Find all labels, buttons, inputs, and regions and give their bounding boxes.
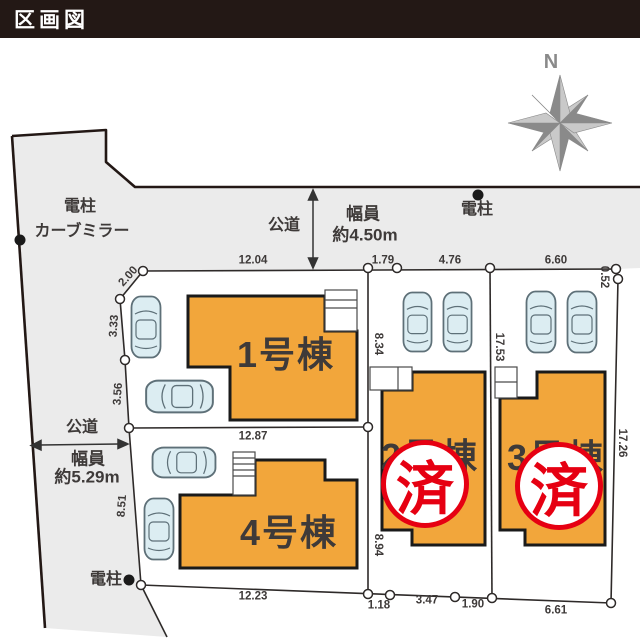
porch-building-4 xyxy=(233,452,255,495)
utility-pole-label-left: 電柱 xyxy=(64,199,96,215)
compass-rose-icon xyxy=(508,75,612,171)
dimension-bottom-4: 1.90 xyxy=(462,599,484,611)
plot-map-page: N 公道 幅員 約4.50m 電柱 電柱 カーブミラー 公道 幅員 約5.29m… xyxy=(0,0,640,639)
car-icon xyxy=(527,292,556,353)
road-width-caption-top: 幅員 xyxy=(346,206,380,223)
dimension-bottom-3: 3.47 xyxy=(416,595,438,607)
page-title: 区画図 xyxy=(0,0,640,38)
dimension-mid-split: 12.87 xyxy=(239,431,268,443)
car-icon xyxy=(443,292,471,351)
dimension-top-c: 6.60 xyxy=(545,255,567,267)
porch-building-2 xyxy=(370,367,412,390)
car-icon xyxy=(153,448,216,478)
porch-building-3 xyxy=(495,367,517,398)
utility-pole-dot xyxy=(15,235,26,246)
car-icon xyxy=(146,381,213,413)
dimension-top-a: 1.79 xyxy=(372,255,394,267)
sold-stamp-building-3: 済 xyxy=(515,442,603,530)
dimension-bottom-5: 6.61 xyxy=(545,605,567,617)
building-1-label: 1号棟 xyxy=(237,337,335,373)
utility-pole-dot xyxy=(473,190,484,201)
utility-pole-dot xyxy=(124,575,135,586)
compass-north-label: N xyxy=(544,52,558,72)
road-label-top: 公道 xyxy=(268,218,300,234)
sold-stamp-building-2: 済 xyxy=(381,440,469,528)
car-icon xyxy=(132,297,161,358)
road-width-value-top: 約4.50m xyxy=(332,227,397,244)
dimension-left-2: 3.33 xyxy=(108,314,121,337)
curve-mirror-label: カーブミラー xyxy=(34,224,129,240)
road-label-left: 公道 xyxy=(66,420,98,436)
dimension-lot1-right: 8.34 xyxy=(371,333,383,355)
utility-pole-label-top-right: 電柱 xyxy=(461,202,493,218)
dimension-top-b: 4.76 xyxy=(439,255,461,267)
dimension-top-main: 12.04 xyxy=(239,255,268,267)
road-width-value-left: 約5.29m xyxy=(54,469,119,486)
porch-building-1 xyxy=(325,290,357,331)
dimension-top-jog: 0.52 xyxy=(597,266,609,288)
dimension-right-edge: 17.26 xyxy=(615,429,627,458)
dimension-bottom-2: 1.18 xyxy=(368,600,390,612)
car-icon xyxy=(403,292,431,351)
dimension-left-3: 3.56 xyxy=(112,382,125,405)
road-width-caption-left: 幅員 xyxy=(71,451,105,468)
dimension-left-4: 8.51 xyxy=(116,494,129,517)
dimension-lot2-right: 17.53 xyxy=(492,333,504,362)
dimension-lot4-right: 8.94 xyxy=(371,534,383,556)
car-icon xyxy=(568,292,597,353)
building-4-label: 4号棟 xyxy=(240,515,338,551)
car-icon xyxy=(145,499,174,560)
utility-pole-label-bottom: 電柱 xyxy=(90,572,122,588)
dimension-bottom-1: 12.23 xyxy=(239,591,268,603)
